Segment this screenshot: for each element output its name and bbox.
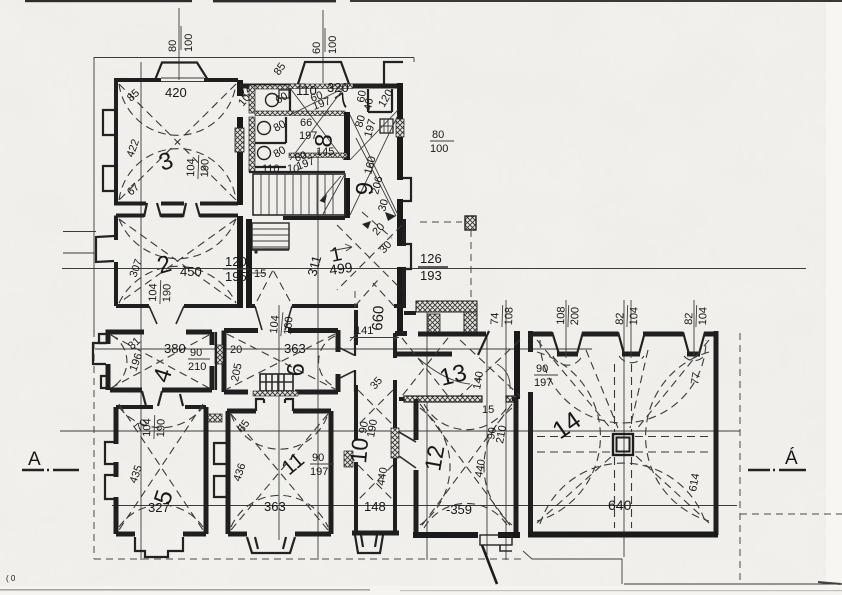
svg-text:363: 363	[284, 341, 306, 356]
svg-text:90: 90	[536, 363, 548, 375]
svg-text:( 0: ( 0	[6, 574, 16, 583]
svg-text:380: 380	[164, 341, 186, 356]
svg-text:60: 60	[311, 42, 323, 54]
svg-text:100: 100	[430, 143, 448, 155]
svg-text:6: 6	[282, 362, 310, 378]
svg-text:90: 90	[312, 452, 324, 464]
svg-text:80: 80	[167, 40, 179, 52]
svg-text:A: A	[28, 449, 41, 470]
svg-text:197: 197	[299, 130, 317, 142]
svg-text:145: 145	[316, 146, 334, 158]
svg-text:210: 210	[188, 361, 206, 373]
svg-text:80: 80	[432, 129, 444, 141]
svg-text:108: 108	[503, 307, 516, 326]
svg-text:-359: -359	[446, 502, 472, 517]
svg-text:197: 197	[534, 377, 552, 389]
svg-text:Á: Á	[785, 448, 798, 469]
svg-text:420: 420	[165, 85, 187, 100]
svg-text:195: 195	[225, 269, 247, 284]
svg-text:190: 190	[155, 419, 168, 438]
svg-text:100: 100	[327, 36, 339, 54]
svg-text:327: 327	[148, 500, 170, 515]
svg-text:82: 82	[683, 312, 695, 325]
svg-text:197: 197	[310, 466, 328, 478]
svg-text:20: 20	[230, 344, 242, 356]
svg-text:200: 200	[569, 307, 582, 326]
svg-text:10: 10	[345, 437, 373, 465]
svg-text:190: 190	[161, 284, 174, 303]
svg-text:141: 141	[355, 325, 373, 337]
svg-text:108: 108	[555, 306, 568, 325]
svg-text:82: 82	[614, 312, 626, 325]
svg-text:320: 320	[327, 80, 349, 95]
svg-text:15: 15	[482, 404, 494, 416]
svg-text:104: 104	[185, 158, 198, 177]
svg-text:90: 90	[190, 347, 202, 359]
svg-text:104: 104	[147, 283, 160, 302]
svg-text:120: 120	[225, 254, 247, 269]
svg-text:148: 148	[364, 499, 386, 514]
svg-text:74: 74	[489, 312, 501, 325]
svg-text:190: 190	[199, 159, 212, 178]
svg-text:12: 12	[419, 443, 449, 473]
svg-text:104: 104	[628, 307, 641, 326]
svg-text:110: 110	[262, 163, 280, 175]
svg-text:104: 104	[697, 307, 710, 326]
svg-text:100: 100	[183, 34, 195, 52]
svg-text:46: 46	[362, 97, 376, 111]
svg-text:450: 450	[180, 264, 202, 279]
svg-text:15: 15	[254, 268, 266, 280]
svg-text:104: 104	[268, 315, 282, 334]
svg-text:363: 363	[264, 499, 286, 514]
svg-text:193: 193	[420, 268, 442, 283]
svg-text:499: 499	[328, 259, 354, 278]
svg-text:66: 66	[300, 117, 312, 129]
svg-text:126: 126	[420, 251, 442, 266]
svg-text:160: 160	[282, 316, 296, 335]
svg-text:640: 640	[608, 497, 632, 513]
svg-text:104: 104	[141, 418, 154, 437]
svg-text:77: 77	[689, 371, 703, 385]
